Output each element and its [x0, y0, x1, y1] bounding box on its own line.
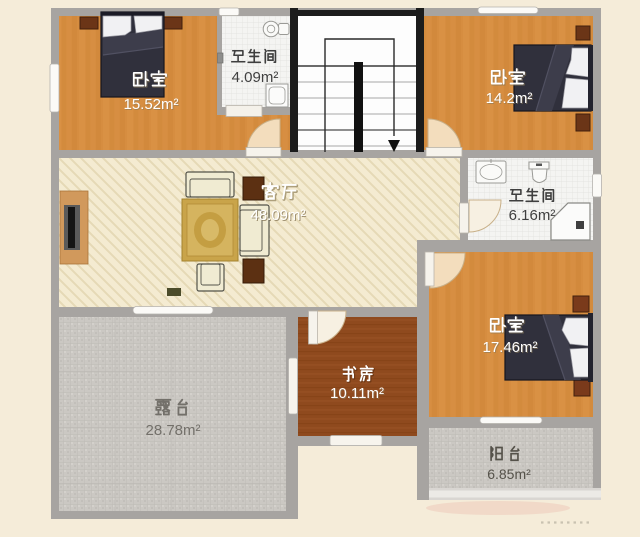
- svg-text:4.09m²: 4.09m²: [232, 69, 279, 86]
- svg-text:17.46m²: 17.46m²: [482, 339, 537, 356]
- svg-text:10.11m²: 10.11m²: [330, 385, 384, 402]
- svg-text:6.85m²: 6.85m²: [487, 466, 531, 482]
- svg-text:48.09m²: 48.09m²: [250, 207, 305, 224]
- svg-text:15.52m²: 15.52m²: [123, 96, 178, 113]
- svg-text:14.2m²: 14.2m²: [486, 90, 533, 107]
- svg-text:28.78m²: 28.78m²: [145, 422, 200, 439]
- svg-text:6.16m²: 6.16m²: [509, 207, 556, 224]
